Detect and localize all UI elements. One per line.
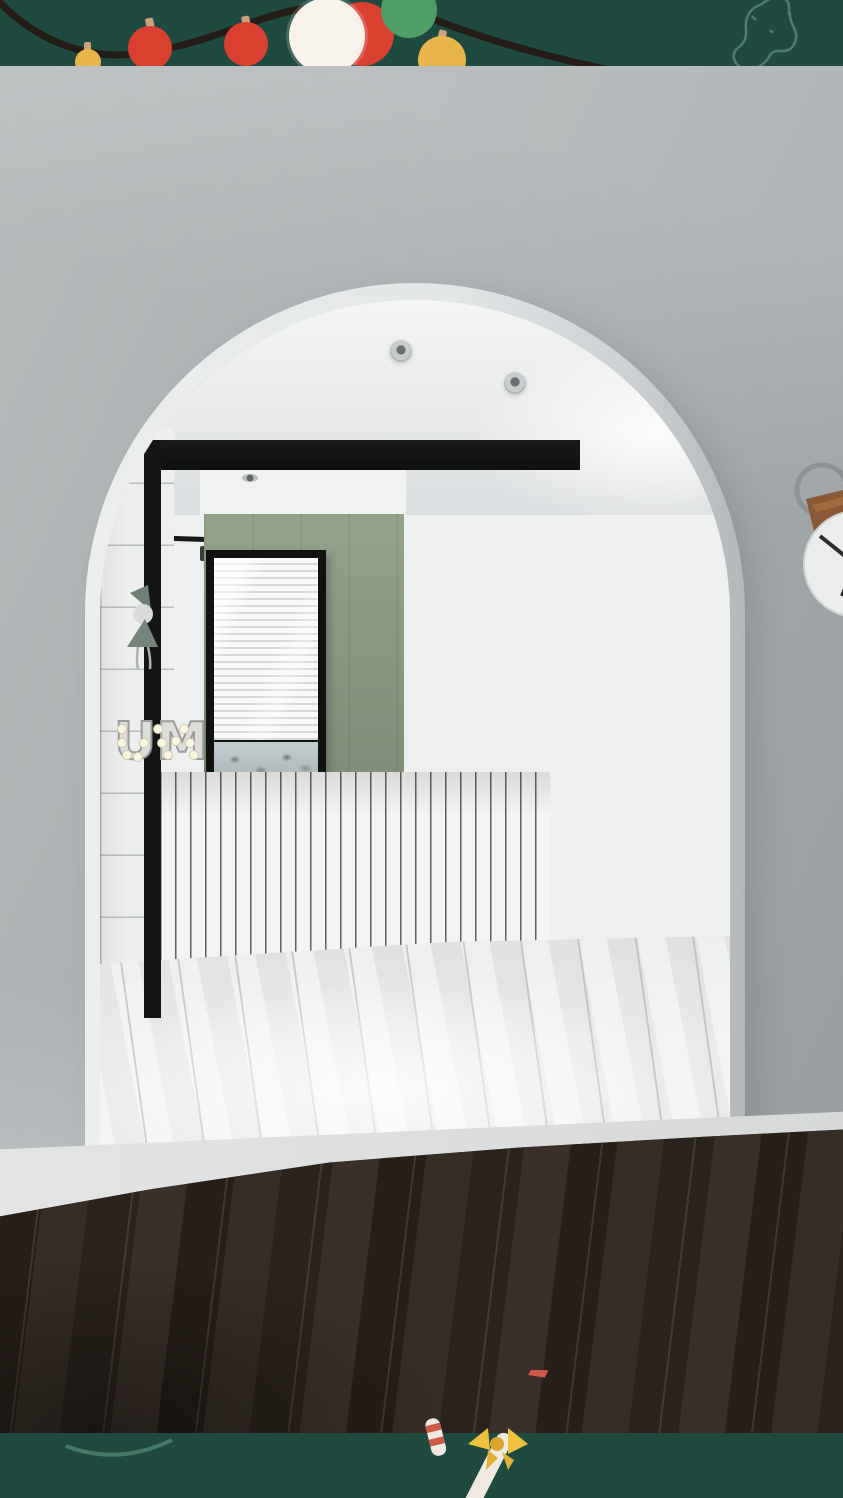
photo-stage: UM xyxy=(0,0,843,1498)
candy-cane-large xyxy=(458,1370,584,1498)
wall-clock-leather-strap xyxy=(0,440,843,660)
spotlight-icon xyxy=(390,340,412,362)
stocking-outline xyxy=(734,0,797,66)
string-lights xyxy=(0,0,843,66)
bauble-red xyxy=(128,26,172,66)
bauble-white xyxy=(289,0,365,66)
niche-bottom: UM xyxy=(100,685,213,785)
marquee-letter-light: UM xyxy=(100,685,213,781)
bottom-decorations xyxy=(0,1370,843,1498)
vertical-tile-wainscot xyxy=(160,772,550,968)
clock-face xyxy=(804,511,843,617)
bauble-yellow xyxy=(418,36,466,66)
arched-opening: UM xyxy=(100,300,730,1215)
spotlight-icon xyxy=(504,372,526,394)
top-festive-strip xyxy=(0,0,843,66)
candy-cane-small xyxy=(424,1417,448,1458)
swoosh-line xyxy=(66,1440,172,1455)
bauble-red-2 xyxy=(224,22,268,66)
